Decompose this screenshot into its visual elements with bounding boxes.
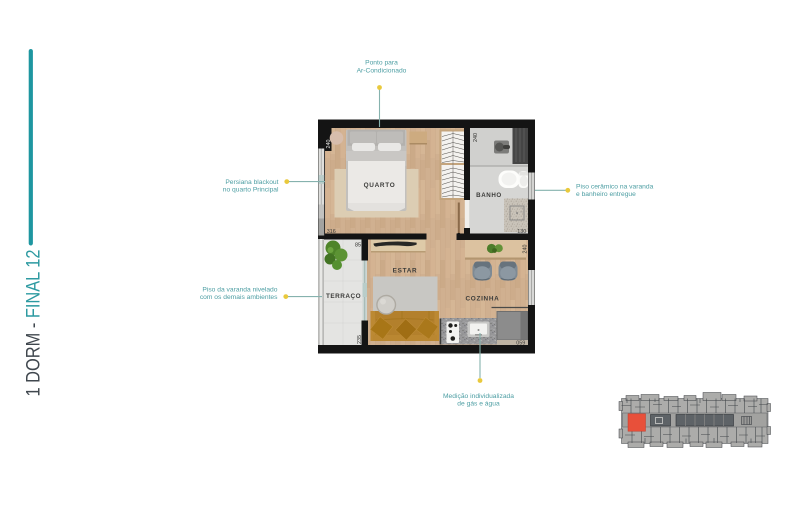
svg-text:059: 059 [516,340,525,346]
svg-text:no quarto Principal: no quarto Principal [223,187,279,194]
svg-text:130: 130 [517,229,526,235]
svg-text:235: 235 [357,335,363,344]
svg-text:240: 240 [326,140,332,149]
svg-text:Medição individualizada: Medição individualizada [443,393,514,400]
svg-text:BANHO: BANHO [476,192,502,199]
svg-text:TERRAÇO: TERRAÇO [326,293,361,300]
svg-text:240: 240 [473,133,479,142]
svg-text:Persiana blackout: Persiana blackout [225,179,278,186]
svg-text:QUARTO: QUARTO [364,182,396,189]
svg-text:Ar-Condicionado: Ar-Condicionado [357,67,407,74]
svg-text:240: 240 [523,245,529,254]
svg-text:85: 85 [355,243,361,249]
svg-text:e banheiro entregue: e banheiro entregue [576,191,636,198]
svg-text:ESTAR: ESTAR [393,268,418,275]
svg-text:1 DORM - FINAL 12: 1 DORM - FINAL 12 [24,250,45,397]
svg-text:316: 316 [327,229,336,235]
svg-text:COZINHA: COZINHA [465,296,499,303]
svg-text:com os demais ambientes: com os demais ambientes [200,294,278,301]
svg-text:Piso cerâmico na varanda: Piso cerâmico na varanda [576,183,654,190]
svg-text:Piso da varanda nivelado: Piso da varanda nivelado [202,286,277,293]
svg-text:Ponto para: Ponto para [365,60,398,67]
svg-text:de gás e água: de gás e água [457,401,500,408]
